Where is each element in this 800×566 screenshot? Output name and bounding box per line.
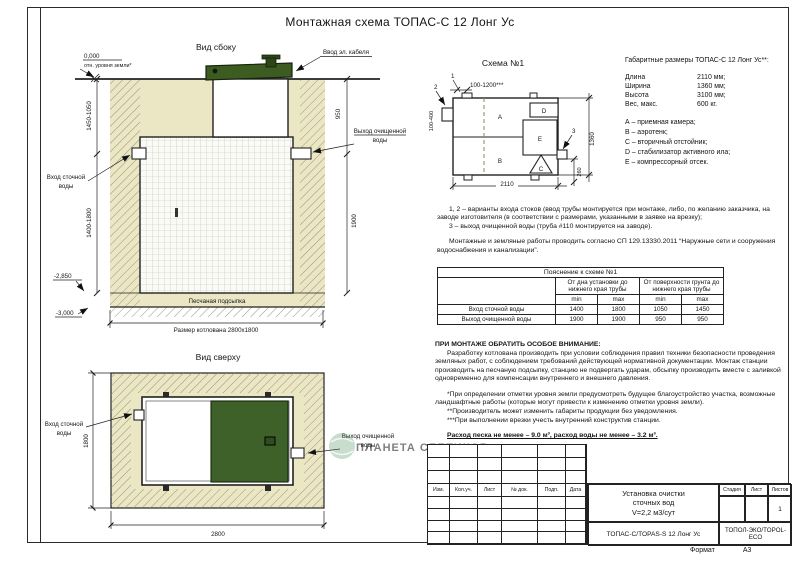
top-inlet-label-line1: Вход сточной <box>45 421 84 428</box>
footnote-1: *При определении отметки уровня земли пр… <box>435 391 789 408</box>
schema-inlet-stub <box>442 108 453 121</box>
spec-value: 1360 мм; <box>697 83 726 92</box>
compartment-e: E <box>538 136 542 143</box>
attention-paragraph: Разработку котлована производить при усл… <box>435 350 789 384</box>
consumption-note: Расход песка не менее – 9.0 м³, расход в… <box>435 432 789 441</box>
top-dim-length: 2800 <box>211 531 225 538</box>
revision-cell <box>428 497 450 509</box>
doc-title-line3: V=2,2 м3/сут <box>632 508 675 517</box>
format-note: Формат А3 <box>690 547 800 554</box>
callout-3: 3 <box>572 128 576 135</box>
revision-cell <box>502 458 538 471</box>
top-outlet-stub <box>291 448 304 458</box>
revision-cell <box>450 497 478 509</box>
top-view-title: Вид сверху <box>196 352 241 362</box>
revision-cell <box>538 458 566 471</box>
doc-title-line1: Установка очистки <box>622 489 685 498</box>
side-view-drawing: Вид сбоку <box>20 38 430 353</box>
vent-pipe <box>266 58 276 67</box>
spec-title: Габаритные размеры ТОПАС-С 12 Лонг Ус**: <box>625 57 789 66</box>
dim-outlet-to-bottom: 1900 <box>351 214 358 228</box>
row-value: 950 <box>682 315 724 325</box>
revision-cell <box>450 458 478 471</box>
footnote-2: **Производитель может изменить габариты … <box>435 408 789 417</box>
schema-dim-bottom: 2110 <box>500 181 514 188</box>
revision-cell <box>450 471 478 484</box>
attention-title: ПРИ МОНТАЖЕ ОБРАТИТЬ ОСОБОЕ ВНИМАНИЕ: <box>435 341 789 350</box>
spec-row: Ширина1360 мм; <box>625 83 789 92</box>
zero-level-mark: 0,000 отн. уровня земли* <box>80 53 132 82</box>
zero-level-note: отн. уровня земли* <box>84 63 132 69</box>
revision-cell <box>538 471 566 484</box>
dim-inlet-to-bottom: 1400-1800 <box>86 208 93 238</box>
callout-1: 1 <box>451 73 455 80</box>
spec-row: Длина2110 мм; <box>625 74 789 83</box>
sheets-header: Листов <box>768 484 792 496</box>
sheet-header: Лист <box>745 484 768 496</box>
revision-header-cell: Дата <box>566 484 586 497</box>
spec-value: 2110 мм; <box>697 74 725 83</box>
legend-item: Е – компрессорный отсек. <box>625 159 789 168</box>
inlet-pipe-stub <box>132 148 146 159</box>
revision-cell <box>428 532 450 544</box>
revision-cell <box>478 458 502 471</box>
revision-header-cell: Кол.уч. <box>450 484 478 497</box>
revision-cell <box>566 445 586 458</box>
revision-cell <box>502 521 538 533</box>
revision-cell <box>566 497 586 509</box>
elevation-marks: -2,850 -3,000 <box>53 273 88 317</box>
compartment-b: B <box>498 158 502 165</box>
zero-level-value: 0,000 <box>84 53 100 60</box>
revision-cell <box>478 509 502 521</box>
revision-cell <box>450 532 478 544</box>
elevation-bottom: -3,000 <box>56 310 74 317</box>
table-corner-cell <box>438 278 556 305</box>
legend-item: С – вторичный отстойник; <box>625 139 789 148</box>
table-row: Вход сточной воды 1400 1800 1050 1450 <box>438 305 724 315</box>
revision-cell <box>566 471 586 484</box>
schema-dim-outlet: 260 <box>577 167 583 176</box>
schema-tank-outline <box>442 93 567 180</box>
table-subheader: min <box>556 295 598 305</box>
revision-cell <box>538 509 566 521</box>
spec-value: 3100 мм; <box>697 92 726 101</box>
revision-header-cell: Лист <box>478 484 502 497</box>
row-value: 1900 <box>556 315 598 325</box>
revision-cell <box>450 509 478 521</box>
sheets-value: 1 <box>768 496 792 522</box>
revision-cell <box>538 532 566 544</box>
spec-row: Высота3100 мм; <box>625 92 789 101</box>
top-inlet-stub <box>134 410 144 420</box>
format-value: А3 <box>743 547 752 554</box>
schema-drawing: Схема №1 A B C D E <box>426 55 631 207</box>
note-norm: Монтажные и земляные работы проводить со… <box>437 238 789 255</box>
revision-cell <box>478 532 502 544</box>
revision-cell <box>502 445 538 458</box>
table-subheader: min <box>640 295 682 305</box>
sand-bed-label: Песчаная подсыпка <box>189 298 247 305</box>
revision-cell <box>428 471 450 484</box>
table-group2-header: От поверхности грунта до нижнего края тр… <box>640 278 724 295</box>
revision-cell <box>566 509 586 521</box>
schema-dim-top: 100-1200*** <box>470 82 504 89</box>
revision-cell <box>478 497 502 509</box>
inlet-label-line1: Вход сточной <box>47 174 86 181</box>
table-title: Пояснение к схеме №1 <box>438 268 724 278</box>
title-block: Изм.Кол.уч.Лист№ док.Подп.Дата Установка… <box>427 444 791 545</box>
compartment-legend: А – приемная камера; В – аэротенк; С – в… <box>625 119 789 168</box>
side-view-title: Вид сбоку <box>196 42 237 52</box>
fitting-mark <box>175 208 178 217</box>
outlet-label-line2: воды <box>373 137 388 144</box>
revision-cell <box>478 471 502 484</box>
doc-code-cell: ТОПАС-С/TOPAS-S 12 Лонг Ус <box>588 522 719 546</box>
company-cell: ТОПОЛ-ЭКО/TOPOL-ECO <box>719 522 792 546</box>
revision-cell <box>478 521 502 533</box>
schema-outlet-stub <box>557 150 567 159</box>
legend-item: А – приемная камера; <box>625 119 789 128</box>
revision-cell <box>502 509 538 521</box>
stage-value <box>719 496 745 522</box>
stage-header: Стадия <box>719 484 745 496</box>
revision-header-cell: № док. <box>502 484 538 497</box>
schema-dim-right: 1360 <box>589 132 596 146</box>
revision-cell <box>538 521 566 533</box>
title-block-main: Установка очистки сточных вод V=2,2 м3/с… <box>587 483 791 545</box>
revision-header-cell: Подп. <box>538 484 566 497</box>
spec-label: Высота <box>625 92 697 101</box>
spec-label: Ширина <box>625 83 697 92</box>
attention-block: ПРИ МОНТАЖЕ ОБРАТИТЬ ОСОБОЕ ВНИМАНИЕ: Ра… <box>435 341 789 441</box>
table-subheader: max <box>682 295 724 305</box>
installation-notes: 1, 2 – варианты входа стоков (ввод трубы… <box>437 206 789 255</box>
revision-cell <box>450 445 478 458</box>
schema-dim-left: 100-400 <box>429 111 435 132</box>
drawing-sheet: Монтажная схема ТОПАС-С 12 Лонг Ус Вид с… <box>0 0 800 566</box>
cable-entry-label: Ввод эл. кабеля <box>323 49 369 56</box>
lid-latch <box>213 69 218 74</box>
revision-cell <box>538 445 566 458</box>
spec-label: Вес, макс. <box>625 101 697 110</box>
dimensions-spec-block: Габаритные размеры ТОПАС-С 12 Лонг Ус**:… <box>625 57 789 169</box>
explanation-table: Пояснение к схеме №1 От дна установки до… <box>437 267 724 325</box>
note-item-12: 1, 2 – варианты входа стоков (ввод трубы… <box>437 206 789 223</box>
revision-cell <box>538 497 566 509</box>
revision-cell <box>478 445 502 458</box>
schema-title: Схема №1 <box>482 58 524 68</box>
top-view-lid-green <box>211 401 288 482</box>
row-value: 1800 <box>598 305 640 315</box>
revision-cell <box>428 521 450 533</box>
lid-hatch-square <box>265 437 275 445</box>
elevation-sand: -2,850 <box>54 273 72 280</box>
tank-lid <box>206 55 292 80</box>
revision-cell <box>428 445 450 458</box>
top-view-tank <box>134 392 304 491</box>
row-value: 950 <box>640 315 682 325</box>
note-item-3: 3 – выход очищенной воды (труба #110 мон… <box>437 223 789 231</box>
top-inlet-label-line2: воды <box>57 430 72 437</box>
inlet-label-line2: воды <box>59 183 74 190</box>
format-label: Формат <box>690 547 715 554</box>
table-subheader: max <box>598 295 640 305</box>
spec-value: 600 кг. <box>697 101 717 110</box>
drawing-title: Монтажная схема ТОПАС-С 12 Лонг Ус <box>250 15 550 29</box>
legend-item: D – стабилизатор активного ила; <box>625 149 789 158</box>
revision-grid: Изм.Кол.уч.Лист№ док.Подп.Дата <box>427 444 587 545</box>
row-label: Выход очищенной воды <box>438 315 556 325</box>
revision-header-cell: Изм. <box>428 484 450 497</box>
revision-cell <box>428 509 450 521</box>
table-row: Выход очищенной воды 1900 1900 950 950 <box>438 315 724 325</box>
footnote-3: ***При выполнении врезки учесть внутренн… <box>435 417 789 426</box>
compartment-c: C <box>539 166 544 173</box>
spec-label: Длина <box>625 74 697 83</box>
row-value: 1050 <box>640 305 682 315</box>
dim-ground-to-inlet: 1450-1050 <box>86 101 93 131</box>
revision-cell <box>502 532 538 544</box>
top-dim-width: 1800 <box>83 434 90 448</box>
dim-ground-to-outlet: 950 <box>335 108 342 119</box>
row-label: Вход сточной воды <box>438 305 556 315</box>
row-value: 1450 <box>682 305 724 315</box>
revision-cell <box>502 497 538 509</box>
callout-2: 2 <box>434 84 438 91</box>
outlet-label-line1: Выход очищенной <box>354 128 407 135</box>
revision-cell <box>566 532 586 544</box>
revision-cell <box>428 458 450 471</box>
pit-size-label: Размер котлована 2800х1800 <box>174 327 259 334</box>
compartment-d: D <box>542 108 547 115</box>
revision-cell <box>502 471 538 484</box>
top-view-drawing: Вид сверху 1800 2800 Вход сточной воды <box>28 350 473 550</box>
sheet-value <box>745 496 768 522</box>
revision-cell <box>566 458 586 471</box>
revision-cell <box>566 521 586 533</box>
spec-row: Вес, макс.600 кг. <box>625 101 789 110</box>
legend-item: В – аэротенк; <box>625 129 789 138</box>
row-value: 1900 <box>598 315 640 325</box>
table-group1-header: От дна установки до нижнего края трубы <box>556 278 640 295</box>
document-title-cell: Установка очистки сточных вод V=2,2 м3/с… <box>588 484 719 522</box>
doc-title-line2: сточных вод <box>633 498 675 507</box>
revision-cell <box>450 521 478 533</box>
row-value: 1400 <box>556 305 598 315</box>
outlet-pipe-stub <box>291 148 311 159</box>
